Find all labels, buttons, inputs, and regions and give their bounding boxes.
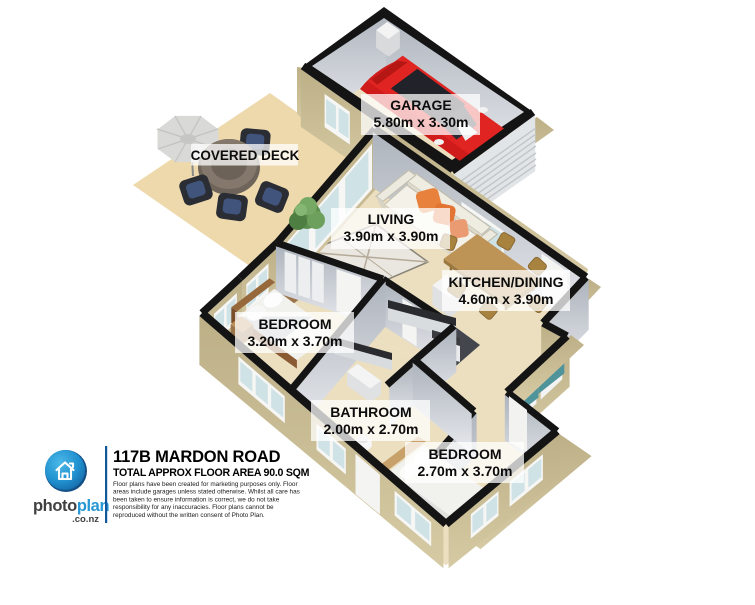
svg-text:BEDROOM: BEDROOM (258, 316, 331, 332)
svg-text:4.60m x 3.90m: 4.60m x 3.90m (459, 291, 554, 307)
svg-text:3.90m x 3.90m: 3.90m x 3.90m (344, 228, 439, 244)
svg-text:TOTAL APPROX FLOOR AREA 90.0 S: TOTAL APPROX FLOOR AREA 90.0 SQM (113, 467, 310, 479)
svg-text:been taken to ensure informati: been taken to ensure information is corr… (113, 496, 280, 503)
svg-text:photoplan: photoplan (33, 497, 109, 515)
svg-text:LIVING: LIVING (368, 211, 415, 227)
svg-text:areas include garages unless s: areas include garages unless stated othe… (113, 489, 300, 496)
svg-text:2.70m x 3.70m: 2.70m x 3.70m (418, 463, 513, 479)
svg-text:COVERED DECK: COVERED DECK (191, 148, 300, 163)
svg-text:5.80m x 3.30m: 5.80m x 3.30m (374, 114, 469, 130)
svg-text:3.20m x 3.70m: 3.20m x 3.70m (248, 333, 343, 349)
svg-text:BATHROOM: BATHROOM (330, 404, 411, 420)
svg-text:BEDROOM: BEDROOM (428, 446, 501, 462)
svg-text:2.00m x 2.70m: 2.00m x 2.70m (324, 421, 419, 437)
svg-text:KITCHEN/DINING: KITCHEN/DINING (448, 274, 563, 290)
svg-text:responsibility for any inaccur: responsibility for any inaccuracies. Flo… (113, 504, 274, 511)
svg-text:reproduced without the written: reproduced without the written consent o… (113, 512, 265, 519)
svg-text:.co.nz: .co.nz (72, 514, 99, 525)
svg-text:117B MARDON ROAD: 117B MARDON ROAD (113, 448, 281, 466)
svg-text:GARAGE: GARAGE (390, 97, 451, 113)
svg-text:Floor plans have been created: Floor plans have been created for market… (113, 481, 298, 488)
